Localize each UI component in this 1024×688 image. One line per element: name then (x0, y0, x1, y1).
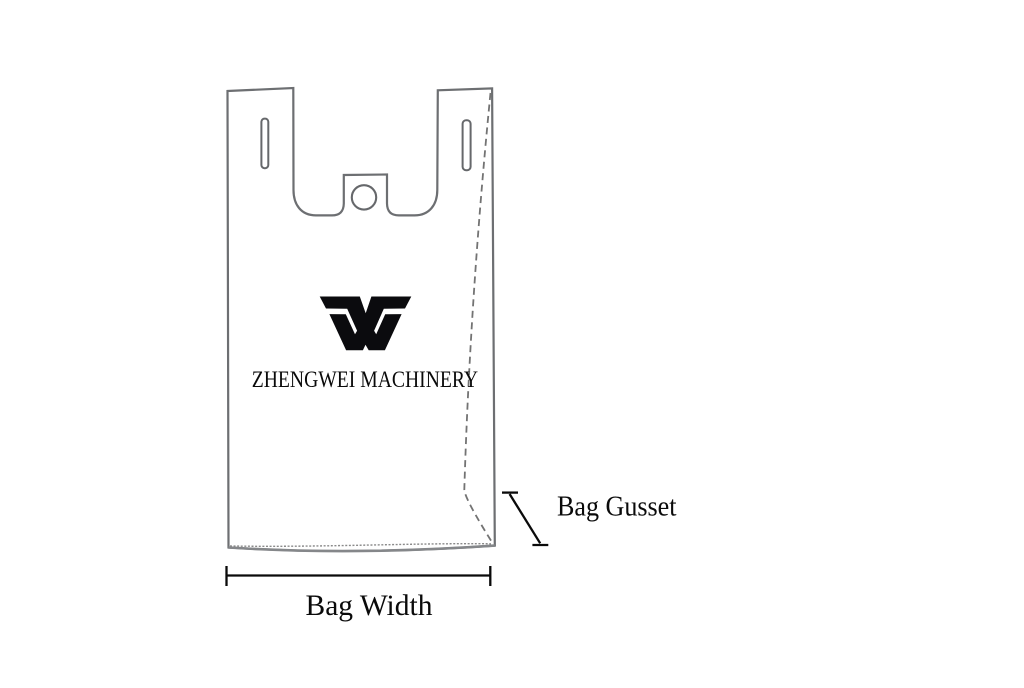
svg-text:Bag Gusset: Bag Gusset (557, 492, 677, 523)
svg-text:Bag Width: Bag Width (306, 590, 433, 622)
svg-text:ZHENGWEI MACHINERY: ZHENGWEI MACHINERY (252, 367, 478, 393)
